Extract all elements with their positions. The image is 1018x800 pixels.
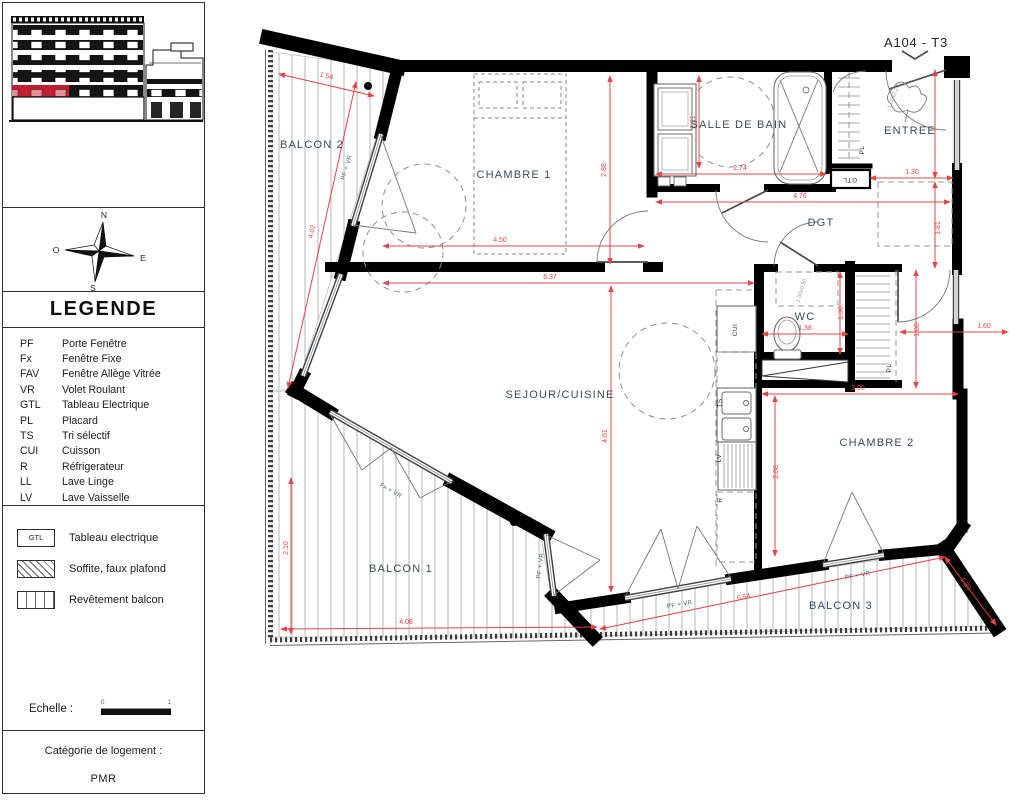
title-block-sidebar: N S E O LEGENDE PF Porte Fenêtre Fx Fenê… [2,2,205,794]
legend-abbr: LL [20,476,62,488]
building-elevation-drawing [3,3,204,206]
legend-label: Volet Roulant [62,384,125,396]
dimension-label: 2.10 [283,541,290,555]
symbol-label: Revêtement balcon [69,594,164,606]
legend-row: LV Lave Vaisselle [20,490,204,505]
compass-panel: N S E O [3,208,204,292]
dimension-label: 1.80 [914,323,921,337]
sink-unit [717,388,756,442]
legend-abbr: GTL [20,399,62,411]
vertical-lines-icon [17,591,55,609]
lave-vaisselle-label: LV [716,454,723,463]
dimension-label: 4.08 [399,619,413,626]
refrigerateur-label: R [717,497,724,502]
balcon1-deck [272,390,596,637]
legend-row: R Réfrigerateur [20,459,204,474]
salle-de-bain-door [716,190,768,242]
legend-row: VR Volet Roulant [20,382,204,397]
symbols-panel: GTL Tableau electrique Soffite, faux pla… [3,506,204,731]
dimension-label: 4.50 [493,237,507,244]
compass-rose: N S E O [3,208,204,292]
scale-row: Echelle : 0 1 [3,702,204,716]
legend-abbr: LV [20,492,62,504]
gtl-label: GTL [843,176,857,183]
legend-label: Réfrigerateur [62,461,124,473]
wc-window-size-label: 1.30x0.80 [795,278,808,303]
scale-bar-graphic [101,708,171,715]
diagonal-hatch-icon [17,560,55,578]
legend-abbr: FAV [20,368,62,380]
room-label-salle-de-bain: SALLE DE BAIN [691,119,788,131]
annex-building-block [146,43,203,120]
room-label-wc: WC [795,311,816,323]
toilet [774,317,801,359]
dimension-label: 2.74 [733,165,747,172]
balcon2-deck [272,52,398,390]
washer-dryer-stack [654,84,696,186]
gtl-box-icon: GTL [17,529,55,547]
entry-door-size-label: 1.20x2.20 [887,84,901,109]
window-pivot-dot [364,82,372,90]
legend-abbr: R [20,461,62,473]
chambre2-door [898,270,950,322]
dimension-label: 6.37 [543,274,557,281]
legend-row: TS Tri sélectif [20,428,204,443]
category-panel: Catégorie de logement : PMR [3,731,204,793]
compass-north-label: N [101,210,107,220]
dimension-label: 1.60 [977,323,991,330]
symbol-label: Soffite, faux plafond [69,563,166,575]
legend-row: LL Lave Linge [20,475,204,490]
legend-row: CUI Cuisson [20,444,204,459]
compass-east-label: E [140,253,146,263]
legend-label: Lave Vaisselle [62,492,130,504]
placard-label-chambre2: PL [886,364,893,373]
symbol-row-gtl: GTL Tableau electrique [17,522,204,553]
compass-west-label: O [53,245,60,255]
dimension-label: 4.61 [602,429,609,443]
floor-plan-sheet: N S E O LEGENDE PF Porte Fenêtre Fx Fenê… [0,0,1018,800]
legend-row: PF Porte Fenêtre [20,336,204,351]
dimension-label: 2.88 [601,163,608,177]
dimension-label: 3.00 [851,385,865,392]
compass-star [65,222,134,282]
bed-chambre1 [474,74,566,254]
dimension-label: 1.81 [935,221,942,235]
dimension-label: 1.30 [838,306,845,320]
room-label-balcon2: BALCON 2 [280,139,344,151]
room-label-dgt: DGT [808,217,835,229]
placard-label-entree: PL [859,146,866,155]
legend-label: Placard [62,415,98,427]
tri-selectif-label: TS [717,398,724,407]
dimension-label: 1.30 [905,169,919,176]
legend-abbr: PL [20,415,62,427]
plan-code-label: A104 - T3 [884,35,948,50]
counter [717,352,756,388]
legend-label: Tri sélectif [62,430,110,442]
scale-label: Echelle : [29,703,73,715]
plan-title: A104 - T3 [884,35,948,59]
floor-plan-drawing: A104 - T3 [207,0,1018,800]
category-value: PMR [3,773,204,785]
room-label-sejour: SEJOUR/CUISINE [505,389,614,401]
title-pointer-icon [902,51,928,59]
room-label-balcon1: BALCON 1 [369,563,433,575]
building-elevation-panel [3,3,204,208]
scale-tick-start: 0 [101,700,104,706]
legend-label: Cuisson [62,445,100,457]
legend-abbr: Fx [20,353,62,365]
legend-abbr: VR [20,384,62,396]
dimension-label: 2.88 [773,465,780,479]
legend-abbreviation-list: PF Porte Fenêtre Fx Fenêtre Fixe FAV Fen… [3,328,204,506]
legend-row: FAV Fenêtre Allège Vitrée [20,367,204,382]
chambre1-door [597,211,648,262]
room-label-chambre2: CHAMBRE 2 [840,437,915,449]
category-label: Catégorie de logement : [3,745,204,757]
legend-row: Fx Fenêtre Fixe [20,351,204,366]
wc-window-dashed-outline [776,272,838,306]
scale-tick-end: 1 [168,700,171,706]
wc-soffit-wedge [762,360,848,382]
dgt-dashed-zone [878,182,952,246]
symbol-row-soffit: Soffite, faux plafond [17,553,204,584]
window-pivot-dot [510,518,518,526]
legend-abbr: CUI [20,445,62,457]
legend-label: Tableau Electrique [62,399,149,411]
legend-label: Lave Linge [62,476,114,488]
legend-abbr: PF [20,338,62,350]
dimension-label: 4.76 [793,193,807,200]
cooktop-label: CUI [732,324,739,337]
legend-label: Fenêtre Fixe [62,353,121,365]
compass-south-label: S [90,283,96,292]
symbol-label: Tableau electrique [69,532,158,544]
dimension-label: 1.38 [798,325,812,332]
room-label-chambre1: CHAMBRE 1 [477,169,552,181]
legend-row: PL Placard [20,413,204,428]
legend-title: LEGENDE [50,298,157,321]
legend-label: Porte Fenêtre [62,338,127,350]
legend-abbr: TS [20,430,62,442]
room-label-entree: ENTREE [884,125,936,137]
legend-title-band: LEGENDE [3,292,204,328]
room-label-balcon3: BALCON 3 [809,600,873,612]
legend-label: Fenêtre Allège Vitrée [62,368,161,380]
legend-row: GTL Tableau Electrique [20,398,204,413]
symbol-row-balcony: Revêtement balcon [17,584,204,615]
scale-bar: 0 1 [101,702,171,716]
